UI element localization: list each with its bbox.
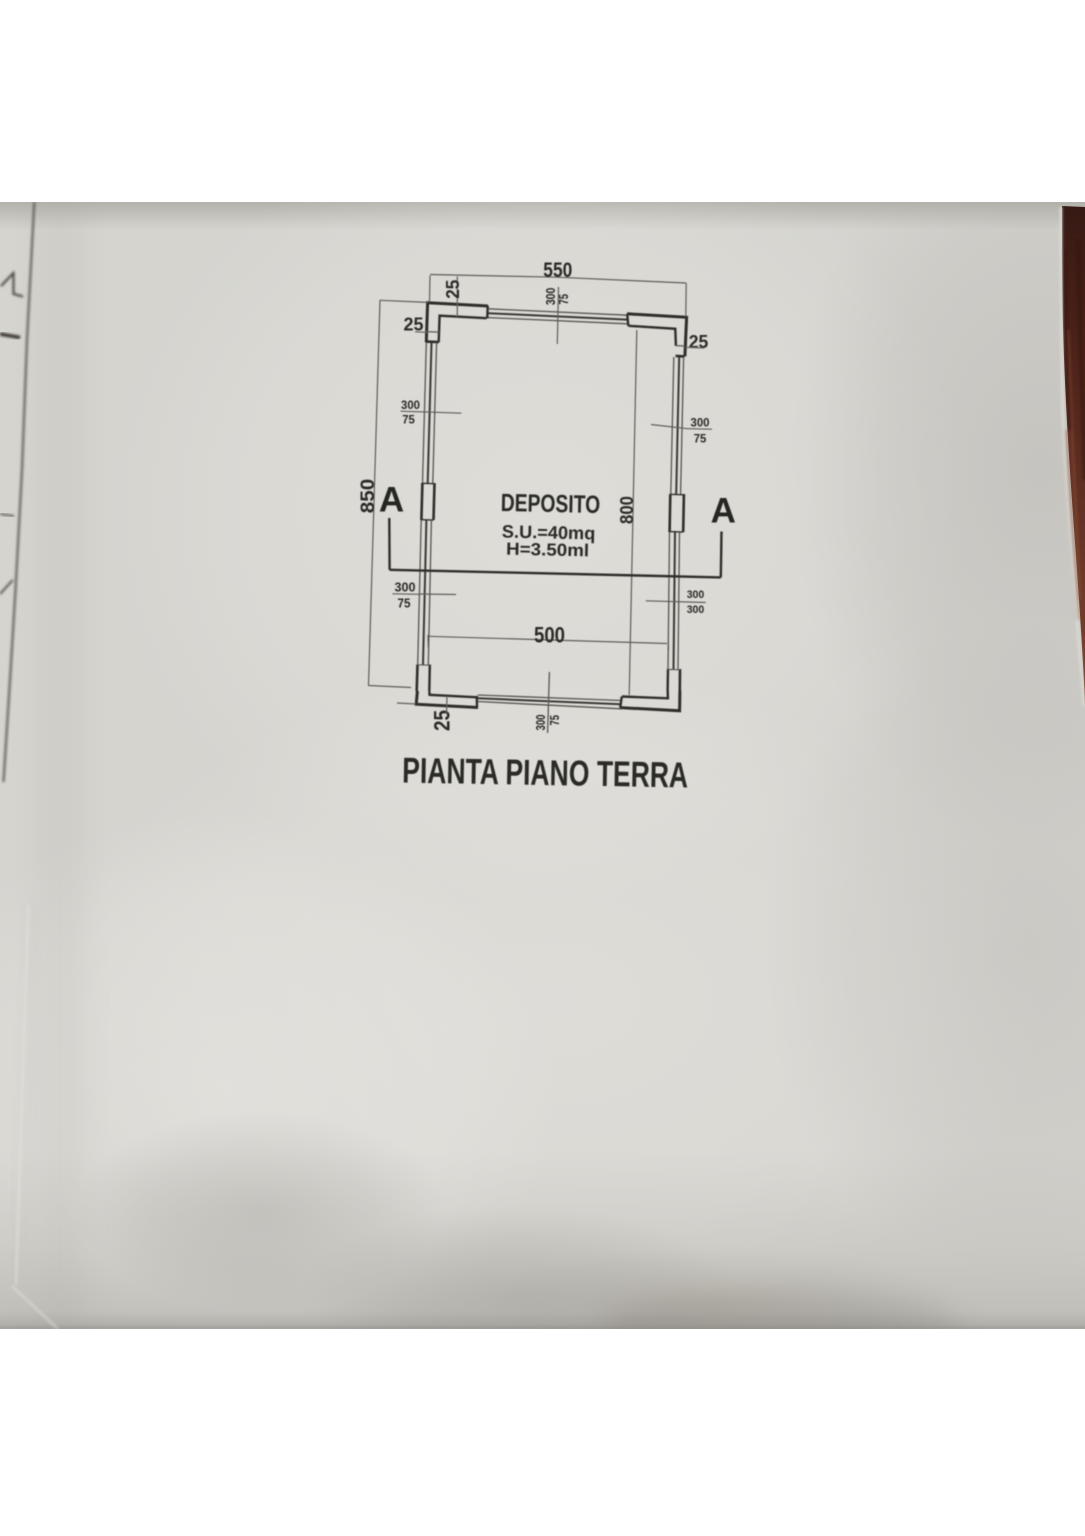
svg-text:75: 75 [402,413,415,427]
svg-text:500: 500 [534,623,565,648]
svg-text:75: 75 [548,715,562,726]
svg-text:A: A [379,481,404,520]
svg-text:800: 800 [617,496,637,524]
svg-text:DEPOSITO: DEPOSITO [500,489,600,519]
svg-text:850: 850 [358,479,379,514]
svg-text:550: 550 [543,259,572,282]
svg-text:300: 300 [401,398,420,412]
svg-text:A: A [711,492,736,531]
svg-text:75: 75 [556,294,571,305]
svg-text:25: 25 [443,280,463,299]
svg-text:300: 300 [687,604,705,616]
svg-text:25: 25 [689,331,709,352]
svg-text:300: 300 [534,714,548,730]
svg-text:75: 75 [398,597,411,611]
svg-text:PIANTA PIANO TERRA: PIANTA PIANO TERRA [402,750,689,796]
svg-text:H=3.50ml: H=3.50ml [506,539,589,561]
svg-text:300: 300 [687,589,705,601]
svg-text:300: 300 [691,416,710,430]
svg-text:25: 25 [430,710,455,731]
svg-text:75: 75 [694,432,707,446]
svg-text:300: 300 [395,581,416,595]
